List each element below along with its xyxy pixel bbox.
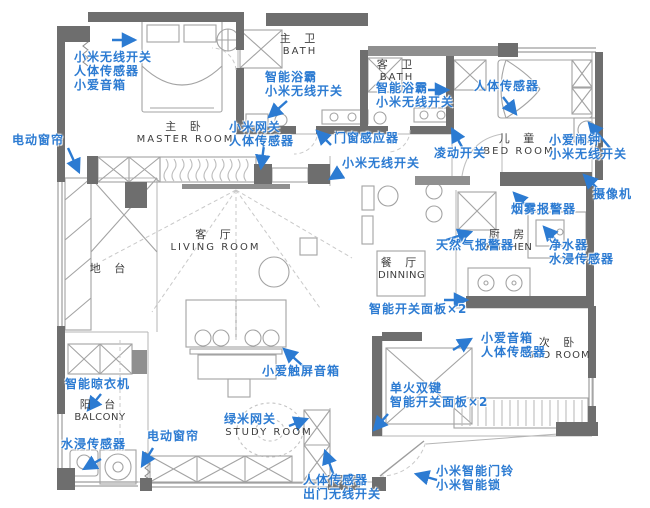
label-wireless-switch-tv: 小米无线开关 <box>342 156 420 170</box>
room-master-en: MASTER ROOM <box>128 133 243 146</box>
room-label-living: 客 厅 LIVING ROOM <box>158 228 273 254</box>
label-gas-alarm: 天然气报警器 <box>436 238 514 252</box>
label-smoke-alarm: 烟雾报警器 <box>511 202 576 216</box>
label-line: 凌动开关 <box>434 146 486 160</box>
study-bench <box>150 456 292 482</box>
label-line: 小米无线开关 <box>342 156 420 170</box>
label-clock-group: 小爱闹钟 小米无线开关 <box>549 133 627 161</box>
label-line: 智能晾衣机 <box>65 377 130 391</box>
label-clothes-dryer: 智能晾衣机 <box>65 377 130 391</box>
label-exit-group: 人体传感器 出门无线开关 <box>303 473 381 501</box>
room-label-balcony: 阳 台 BALCONY <box>68 398 132 424</box>
label-speaker-second-group: 小爱音箱 人体传感器 <box>481 331 546 359</box>
label-line: 小米网关 <box>229 120 294 134</box>
arrow-doorbell <box>416 474 437 480</box>
side-table <box>300 238 317 255</box>
label-line: 水浸传感器 <box>549 252 614 266</box>
label-line: 人体传感器 <box>481 345 546 359</box>
label-body-sensor-kids: 人体传感器 <box>474 79 539 93</box>
coffee-table <box>259 257 289 287</box>
master-bed <box>142 20 222 112</box>
label-line: 人体传感器 <box>474 79 539 93</box>
label-line: 智能浴霸 <box>376 81 454 95</box>
label-single-fire-group: 单火双键 智能开关面板×2 <box>390 381 488 409</box>
label-master-group: 小米无线开关 人体传感器 小爱音箱 <box>74 50 152 92</box>
room-living-en: LIVING ROOM <box>158 241 273 254</box>
label-line: 天然气报警器 <box>436 238 514 252</box>
label-line: 小米无线开关 <box>549 147 627 161</box>
label-touchscreen-speaker: 小爱触屏音箱 <box>262 364 340 378</box>
tv-wall-wardrobe <box>98 157 308 182</box>
label-line: 净水器 <box>549 238 614 252</box>
room-master-bath-zh: 主 卫 <box>272 32 328 45</box>
room-balcony-zh: 阳 台 <box>68 398 132 411</box>
label-switch-panel-dining: 智能开关面板×2 <box>369 302 467 316</box>
arrow-wireless-switch-tv <box>330 172 341 179</box>
room-label-dining: 餐 厅 DINNING <box>378 256 424 282</box>
label-line: 智能浴霸 <box>265 70 343 84</box>
label-line: 人体传感器 <box>74 64 152 78</box>
label-line: 智能开关面板×2 <box>369 302 467 316</box>
label-lingdong-switch: 凌动开关 <box>434 146 486 160</box>
label-line: 单火双键 <box>390 381 488 395</box>
label-line: 出门无线开关 <box>303 487 381 501</box>
room-label-master-bath: 主 卫 BATH <box>272 32 328 58</box>
label-line: 门窗感应器 <box>334 131 399 145</box>
room-platform-zh: 地 台 <box>88 262 132 275</box>
label-line: 人体传感器 <box>303 473 381 487</box>
label-line: 小爱音箱 <box>481 331 546 345</box>
label-master-bath-group: 智能浴霸 小米无线开关 <box>265 70 343 98</box>
label-camera: 摄像机 <box>593 187 632 201</box>
arrow-lingdong <box>452 129 462 147</box>
label-line: 小米智能门铃 <box>436 464 514 478</box>
label-purifier-group: 净水器 水浸传感器 <box>549 238 614 266</box>
room-balcony-en: BALCONY <box>68 411 132 424</box>
label-line: 电动窗帘 <box>147 429 199 443</box>
label-guest-bath-group: 智能浴霸 小米无线开关 <box>376 81 454 109</box>
arrow-curtain-master <box>68 148 79 172</box>
label-line: 智能开关面板×2 <box>390 395 488 409</box>
label-line: 摄像机 <box>593 187 632 201</box>
room-guest-bath-zh: 客 卫 <box>372 58 422 71</box>
study-cabinet <box>304 410 330 480</box>
hall-chairs <box>362 183 442 244</box>
label-line: 烟雾报警器 <box>511 202 576 216</box>
label-line: 电动窗帘 <box>12 133 64 147</box>
label-curtain-master: 电动窗帘 <box>12 133 64 147</box>
label-line: 水浸传感器 <box>61 437 126 451</box>
ceiling-lamp <box>217 29 239 51</box>
room-master-bath-en: BATH <box>272 45 328 58</box>
label-lumi-gateway: 绿米网关 <box>224 412 276 426</box>
label-curtain-study: 电动窗帘 <box>147 429 199 443</box>
label-line: 小米无线开关 <box>376 95 454 109</box>
room-master-zh: 主 卧 <box>128 120 243 133</box>
annotation-arrows <box>68 40 610 480</box>
room-label-platform: 地 台 <box>88 262 132 275</box>
room-dining-en: DINNING <box>378 269 424 282</box>
label-line: 小米无线开关 <box>74 50 152 64</box>
label-line: 小爱闹钟 <box>549 133 627 147</box>
room-living-zh: 客 厅 <box>158 228 273 241</box>
label-doorbell-group: 小米智能门铃 小米智能锁 <box>436 464 514 492</box>
label-line: 人体传感器 <box>229 134 294 148</box>
master-door-arc <box>212 48 236 70</box>
label-line: 绿米网关 <box>224 412 276 426</box>
room-label-study: STUDY ROOM <box>216 426 322 439</box>
label-line: 小爱触屏音箱 <box>262 364 340 378</box>
label-line: 小米智能锁 <box>436 478 514 492</box>
label-water-leak-balcony: 水浸传感器 <box>61 437 126 451</box>
label-line: 小米无线开关 <box>265 84 343 98</box>
label-door-window-sensor: 门窗感应器 <box>334 131 399 145</box>
arrow-body-sensor-kids <box>503 97 516 114</box>
room-study-en: STUDY ROOM <box>216 426 322 439</box>
room-label-master: 主 卧 MASTER ROOM <box>128 120 243 146</box>
room-dining-zh: 餐 厅 <box>378 256 424 269</box>
floorplan: 主 卧 MASTER ROOM 主 卫 BATH 客 卫 BATH 儿 童 BE… <box>0 0 650 508</box>
label-line: 小爱音箱 <box>74 78 152 92</box>
label-gateway-group: 小米网关 人体传感器 <box>229 120 294 148</box>
